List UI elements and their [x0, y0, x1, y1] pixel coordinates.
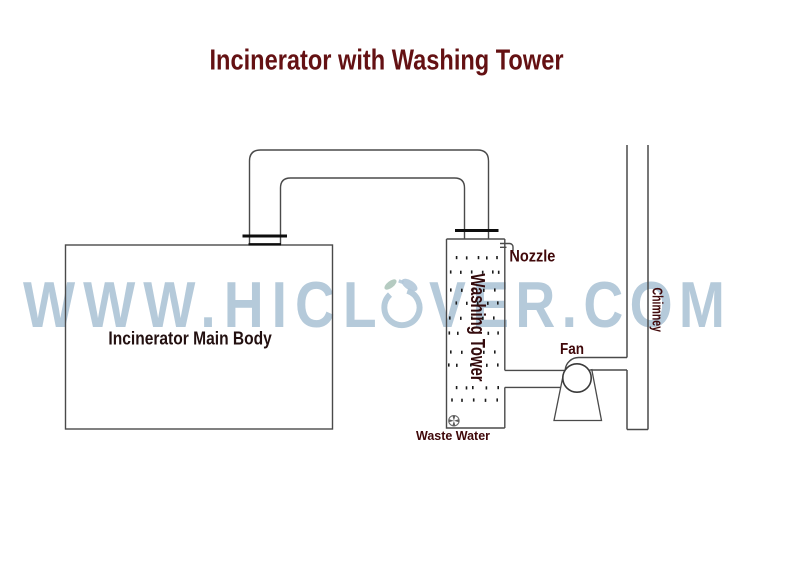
svg-text:Fan: Fan: [560, 341, 584, 358]
svg-text:Waste Water: Waste Water: [416, 428, 490, 443]
svg-text:Nozzle: Nozzle: [509, 246, 555, 265]
svg-text:Washing Tower: Washing Tower: [466, 274, 488, 382]
svg-text:Incinerator Main Body: Incinerator Main Body: [108, 327, 272, 348]
svg-text:Incinerator with Washing Tower: Incinerator with Washing Tower: [210, 45, 564, 77]
svg-text:Chimney: Chimney: [649, 288, 665, 333]
